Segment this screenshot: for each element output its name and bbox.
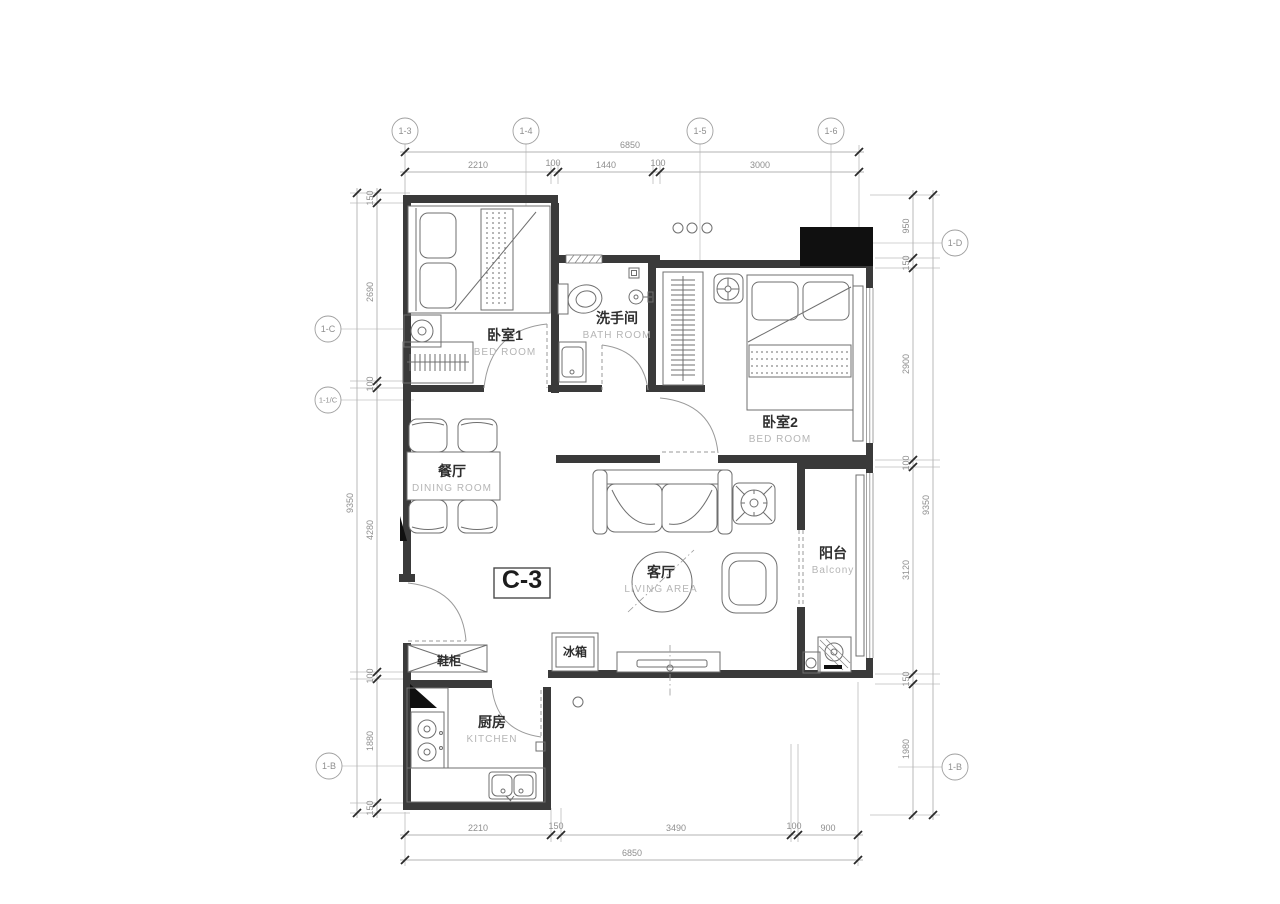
dim-left-2: 2690 <box>365 282 375 302</box>
dim-top-1: 2210 <box>468 160 488 170</box>
dim-right-2: 150 <box>901 255 911 270</box>
label-shoe-cabinet: 鞋柜 <box>437 653 461 668</box>
sofa-cushion-2 <box>662 484 717 532</box>
dim-right-7: 1980 <box>901 739 911 759</box>
balcony-sliding-door <box>799 530 803 607</box>
grid-label-1-b-left: 1-B <box>322 761 336 771</box>
dim-right-5: 3120 <box>901 560 911 580</box>
dim-top-5: 3000 <box>750 160 770 170</box>
label-kitchen-en: KITCHEN <box>467 734 518 745</box>
toilet-tank <box>558 284 568 314</box>
grid-label-1-4: 1-4 <box>519 126 532 136</box>
dim-right-6: 150 <box>901 671 911 686</box>
dim-bottom-overall: 6850 <box>622 848 642 858</box>
dim-right-4: 100 <box>901 455 911 470</box>
label-bedroom2-en: BED ROOM <box>749 434 811 445</box>
grid-label-1-5: 1-5 <box>693 126 706 136</box>
column-circles <box>673 223 712 233</box>
bed2-pillow-1 <box>752 282 798 320</box>
dim-bottom-2: 150 <box>548 821 563 831</box>
dim-right-overall: 9350 <box>921 495 931 515</box>
dim-left-7: 150 <box>365 800 375 815</box>
dim-right-1: 950 <box>901 218 911 233</box>
dim-top-2: 100 <box>545 158 560 168</box>
label-bedroom1-en: BED ROOM <box>474 347 536 358</box>
living-rug <box>632 552 692 612</box>
dim-bottom-5: 900 <box>820 823 835 833</box>
grid-label-1-1c: 1-1/C <box>319 396 338 405</box>
unit-label-box: C-3 <box>494 566 550 598</box>
dim-left-4: 4280 <box>365 520 375 540</box>
dim-left-1: 150 <box>365 190 375 205</box>
shower-head <box>629 290 643 304</box>
dim-left-6: 1880 <box>365 731 375 751</box>
grid-label-1-d: 1-D <box>948 238 963 248</box>
label-bathroom-en: BATH ROOM <box>583 330 652 341</box>
sofa-cushion-1 <box>607 484 662 532</box>
dim-right-3: 2900 <box>901 354 911 374</box>
sofa-back <box>593 470 732 484</box>
bed2-pillow-2 <box>803 282 849 320</box>
dim-top-4: 100 <box>650 158 665 168</box>
label-bedroom1-cn: 卧室1 <box>487 327 523 343</box>
dim-top-overall: 6850 <box>620 140 640 150</box>
dim-left-5: 100 <box>365 668 375 683</box>
shaft-block <box>800 227 873 266</box>
armchair <box>722 553 777 613</box>
label-living-en: LIVING AREA <box>624 584 697 595</box>
dim-bottom-4: 100 <box>786 821 801 831</box>
floorplan-svg: 1-3 1-4 1-5 1-6 1-C 1-1/C 1-B 1-D 1-B 68… <box>0 0 1280 904</box>
label-fridge: 冰箱 <box>563 644 587 659</box>
label-bathroom-cn: 洗手间 <box>596 310 638 326</box>
grid-label-1-c: 1-C <box>321 324 336 334</box>
grid-label-1-6: 1-6 <box>824 126 837 136</box>
label-dining-en: DINING ROOM <box>412 483 492 494</box>
label-living-cn: 客厅 <box>646 564 675 580</box>
floor-drain <box>629 268 639 278</box>
sofa-arm-right <box>718 470 732 534</box>
dim-left-overall: 9350 <box>345 493 355 513</box>
label-balcony-cn: 阳台 <box>819 545 847 561</box>
label-kitchen-cn: 厨房 <box>478 714 506 730</box>
bedroom2-door <box>660 398 718 453</box>
dim-bottom-3: 3490 <box>666 823 686 833</box>
label-balcony-en: Balcony <box>812 565 855 576</box>
bed1-pillow-2 <box>420 263 456 308</box>
dim-left-3: 100 <box>365 376 375 391</box>
balcony-fixtures <box>803 637 851 673</box>
sofa-arm-left <box>593 470 607 534</box>
window-bathroom <box>566 255 602 263</box>
dim-top-3: 1440 <box>596 160 616 170</box>
label-dining-cn: 餐厅 <box>437 463 466 479</box>
door-stop <box>573 697 583 707</box>
bed1-pillow-1 <box>420 213 456 258</box>
label-bedroom2-cn: 卧室2 <box>762 414 798 430</box>
grid-label-1-3: 1-3 <box>398 126 411 136</box>
floor-plan-page: 1-3 1-4 1-5 1-6 1-C 1-1/C 1-B 1-D 1-B 68… <box>0 0 1280 904</box>
dim-bottom-1: 2210 <box>468 823 488 833</box>
entry-door <box>408 583 466 641</box>
grid-label-1-b-right: 1-B <box>948 762 962 772</box>
unit-label: C-3 <box>502 566 542 594</box>
bathroom-door <box>602 345 648 390</box>
